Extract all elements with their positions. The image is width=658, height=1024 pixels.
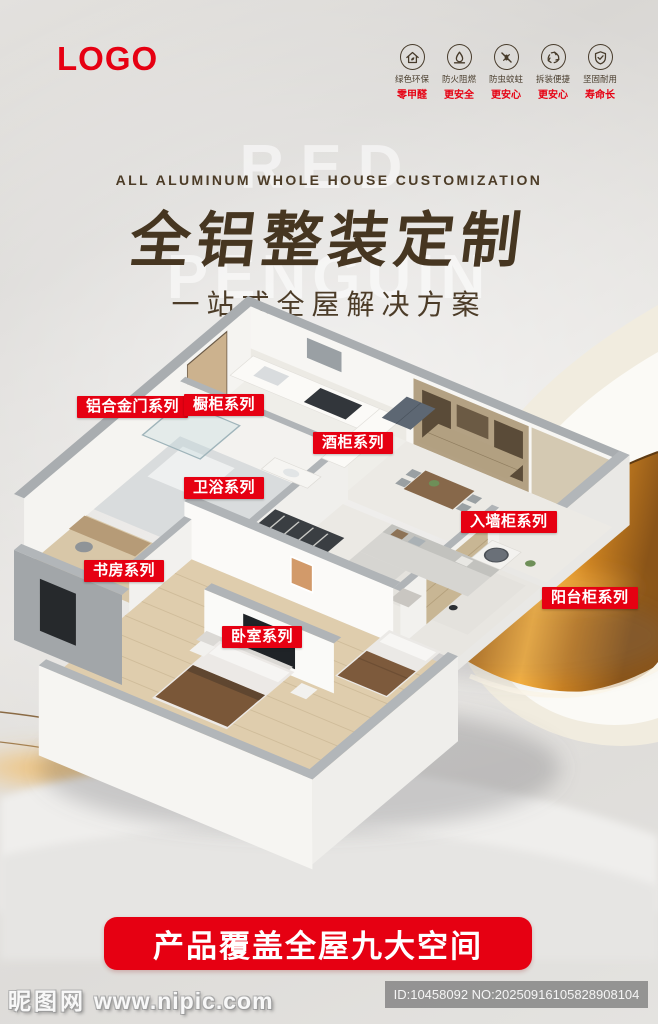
room-label-aluminum-door: 铝合金门系列 (77, 396, 188, 418)
room-label-study: 书房系列 (84, 560, 164, 582)
room-label-wall-cabinet: 入墙柜系列 (461, 511, 557, 533)
room-label-bedroom: 卧室系列 (222, 626, 302, 648)
nipic-site-url: www.nipic.com (94, 988, 274, 1014)
room-label-bathroom: 卫浴系列 (184, 477, 264, 499)
poster: RED PENGUIN LOGO 绿色环保 零甲醛 防火阻燃 更安全 (0, 0, 658, 1024)
apartment-3d-render (0, 0, 658, 1024)
bottom-banner: 产品覆盖全屋九大空间 (104, 917, 532, 970)
room-label-balcony-cabinet: 阳台柜系列 (542, 587, 638, 609)
room-label-cabinet: 橱柜系列 (184, 394, 264, 416)
nipic-watermark: 昵图网www.nipic.com (8, 982, 274, 1016)
image-id-bar: ID:10458092 NO:20250916105828908104 (385, 981, 648, 1008)
room-label-wine-cabinet: 酒柜系列 (313, 432, 393, 454)
nipic-site-name: 昵图网 (8, 988, 86, 1014)
